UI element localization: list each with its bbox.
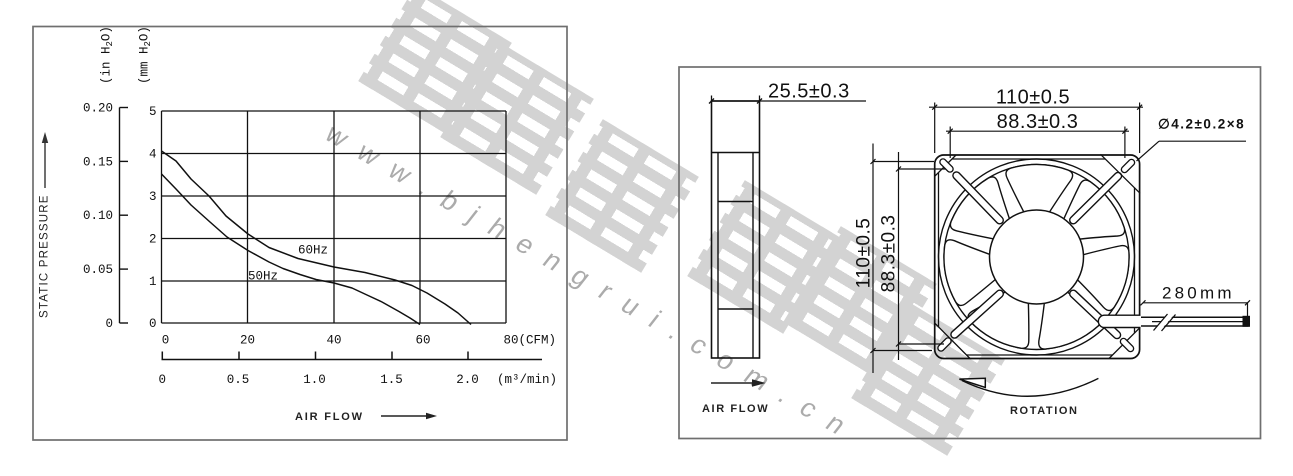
svg-text:(in H2O): (in H2O) [100,26,116,84]
svg-text:88.3±0.3: 88.3±0.3 [879,215,900,293]
svg-text:1.0: 1.0 [303,373,326,387]
svg-text:STATIC PRESSURE: STATIC PRESSURE [39,194,51,318]
svg-text:25.5±0.3: 25.5±0.3 [768,81,850,103]
svg-text:1: 1 [149,275,157,289]
svg-text:80(CFM): 80(CFM) [504,334,557,348]
svg-text:0.15: 0.15 [83,155,113,169]
svg-text:0.05: 0.05 [83,263,113,277]
svg-text:(mm H2O): (mm H2O) [138,26,154,84]
svg-text:88.3±0.3: 88.3±0.3 [997,111,1079,133]
svg-text:AIR FLOW: AIR FLOW [295,411,364,423]
svg-text:0: 0 [162,334,170,348]
svg-text:5: 5 [149,105,157,119]
svg-text:0: 0 [149,317,157,331]
svg-text:4: 4 [149,148,157,162]
svg-text:AIR FLOW: AIR FLOW [702,403,769,415]
svg-text:0: 0 [105,317,113,331]
svg-text:0.20: 0.20 [83,102,113,116]
svg-text:0: 0 [159,373,167,387]
svg-text:60: 60 [415,334,430,348]
svg-text:3: 3 [149,190,157,204]
svg-text:2: 2 [149,233,157,247]
svg-text:2.0: 2.0 [456,373,479,387]
svg-text:ROTATION: ROTATION [1010,405,1079,417]
svg-text:0.10: 0.10 [83,209,113,223]
svg-text:60Hz: 60Hz [298,244,328,258]
svg-text:1.5: 1.5 [380,373,403,387]
svg-text:0.5: 0.5 [227,373,250,387]
svg-text:(m³/min): (m³/min) [497,373,557,387]
svg-text:20: 20 [240,334,255,348]
svg-text:∅4.2±0.2×8: ∅4.2±0.2×8 [1158,117,1245,132]
svg-text:40: 40 [326,334,341,348]
svg-text:50Hz: 50Hz [248,270,278,284]
svg-text:110±0.5: 110±0.5 [996,87,1070,109]
svg-text:280mm: 280mm [1162,284,1235,303]
svg-text:110±0.5: 110±0.5 [854,218,875,289]
